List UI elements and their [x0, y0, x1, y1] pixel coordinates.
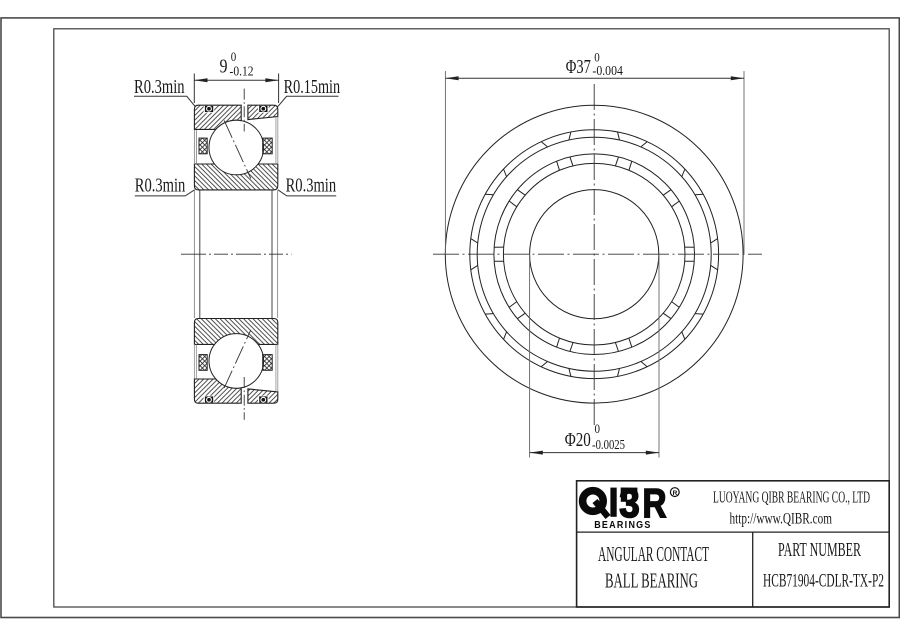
svg-text:-0.004: -0.004 — [592, 64, 623, 79]
svg-text:BALL BEARING: BALL BEARING — [605, 569, 698, 593]
svg-text:LUOYANG QIBR BEARING CO., LTD: LUOYANG QIBR BEARING CO., LTD — [713, 488, 870, 507]
svg-text:http://www.QIBR.com: http://www.QIBR.com — [730, 511, 833, 528]
svg-text:9: 9 — [220, 56, 228, 78]
svg-text:-0.0025: -0.0025 — [592, 438, 625, 453]
svg-text:0: 0 — [595, 421, 601, 436]
svg-text:ANGULAR CONTACT: ANGULAR CONTACT — [598, 542, 709, 566]
svg-text:0: 0 — [231, 49, 237, 64]
svg-text:R: R — [673, 490, 678, 497]
svg-text:Φ20: Φ20 — [565, 429, 591, 451]
svg-text:HCB71904-CDLR-TX-P2: HCB71904-CDLR-TX-P2 — [763, 571, 884, 592]
svg-text:0: 0 — [594, 50, 600, 65]
svg-text:PART NUMBER: PART NUMBER — [778, 539, 861, 561]
svg-text:Φ37: Φ37 — [566, 56, 591, 78]
svg-text:-0.12: -0.12 — [230, 64, 254, 79]
svg-text:R0.3min: R0.3min — [286, 175, 337, 197]
svg-text:R0.3min: R0.3min — [135, 175, 186, 197]
svg-text:R0.3min: R0.3min — [134, 76, 185, 98]
svg-text:R0.15min: R0.15min — [284, 76, 341, 98]
svg-text:BEARINGS: BEARINGS — [594, 519, 652, 531]
